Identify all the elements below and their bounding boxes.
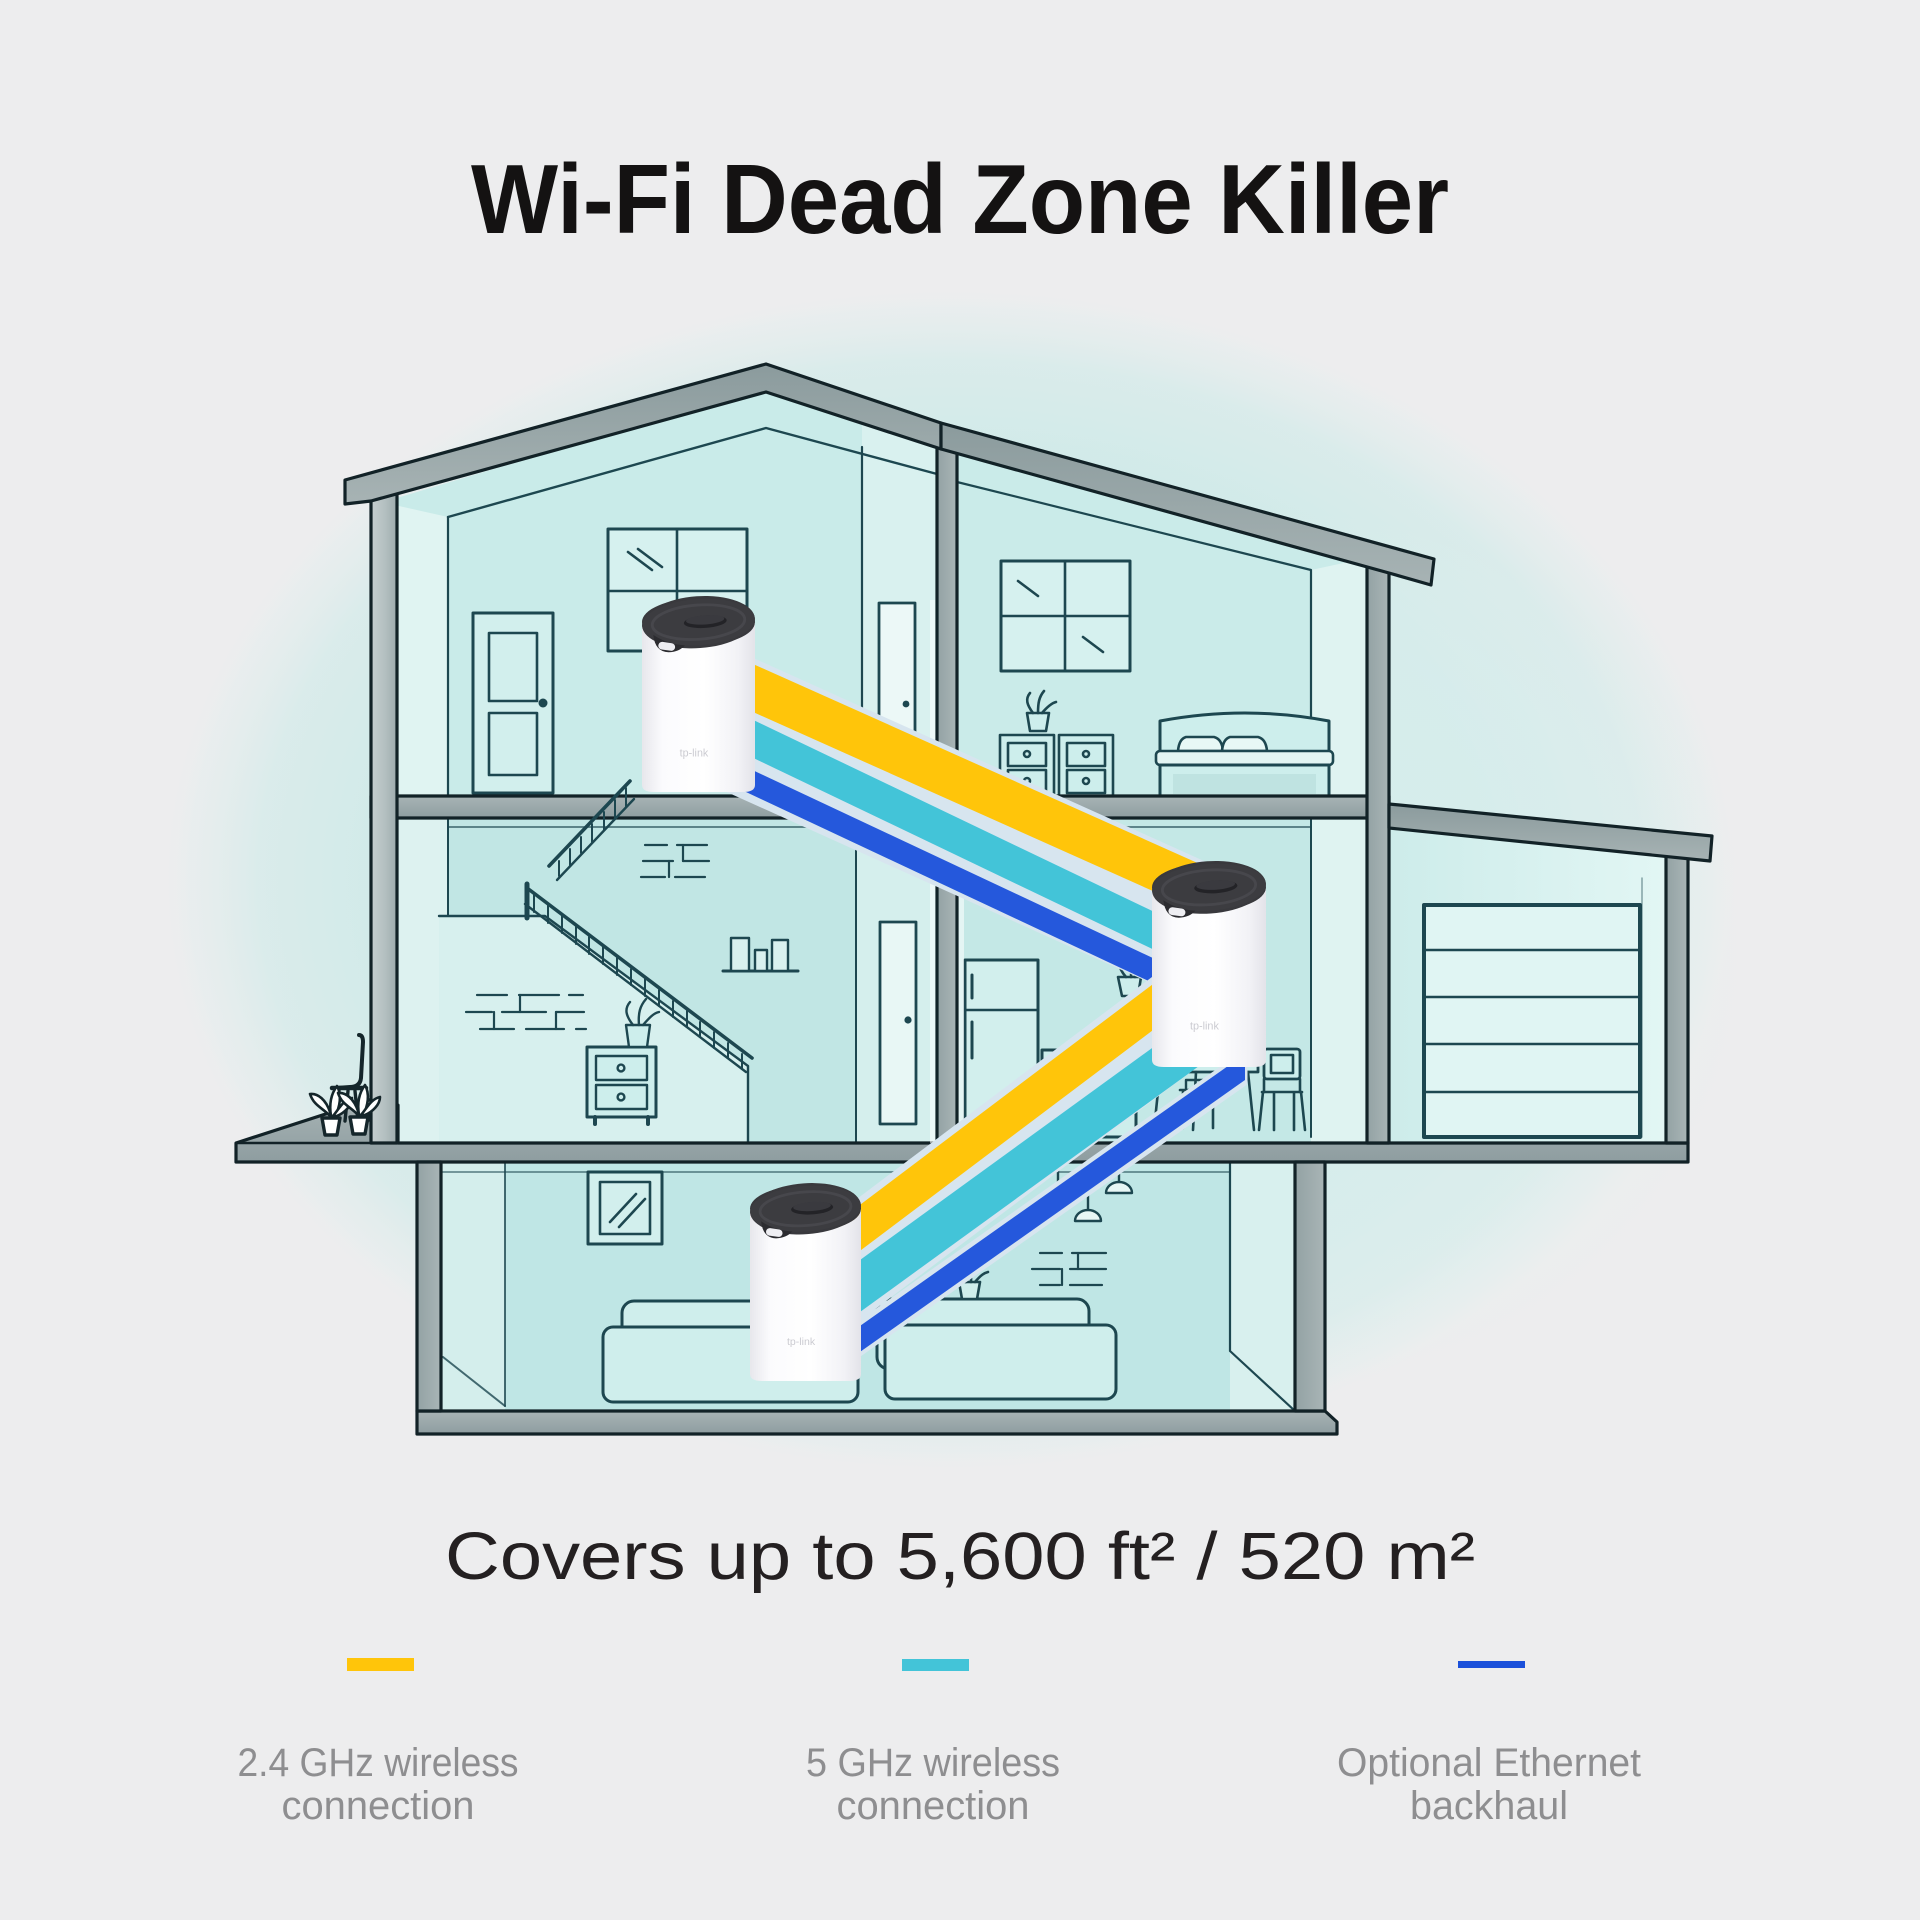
svg-text:Covers up to 5,600 ft² / 520 m: Covers up to 5,600 ft² / 520 m² (445, 1519, 1475, 1594)
svg-text:tp-link: tp-link (680, 747, 709, 759)
svg-text:Wi-Fi Dead Zone Killer: Wi-Fi Dead Zone Killer (471, 144, 1449, 254)
svg-text:Optional Ethernet: Optional Ethernet (1337, 1741, 1641, 1785)
svg-text:backhaul: backhaul (1410, 1784, 1568, 1828)
svg-text:tp-link: tp-link (787, 1336, 816, 1348)
svg-text:2.4 GHz wireless: 2.4 GHz wireless (238, 1741, 519, 1785)
svg-text:5 GHz wireless: 5 GHz wireless (806, 1741, 1060, 1785)
svg-text:connection: connection (282, 1784, 475, 1828)
svg-text:connection: connection (837, 1784, 1030, 1828)
svg-text:tp-link: tp-link (1190, 1020, 1219, 1032)
